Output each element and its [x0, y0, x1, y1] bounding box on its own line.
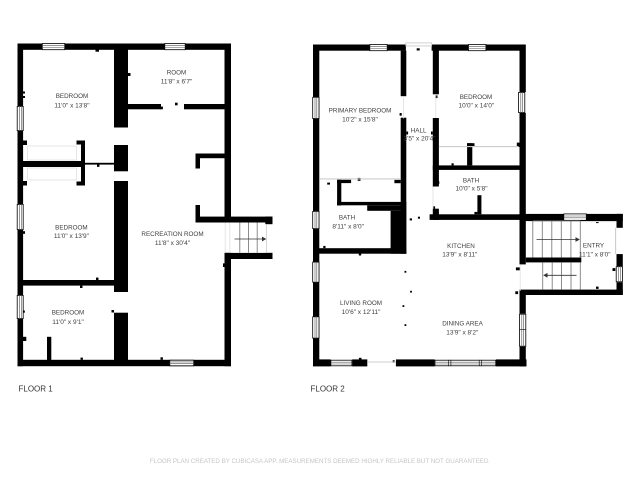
- svg-text:13'9" x 8'11": 13'9" x 8'11": [442, 252, 478, 259]
- svg-text:HALL: HALL: [411, 128, 427, 135]
- svg-text:11'0" x 13'8": 11'0" x 13'8": [54, 103, 90, 110]
- svg-text:11'8" x 30'4": 11'8" x 30'4": [155, 240, 191, 247]
- svg-text:10'0" x 14'0": 10'0" x 14'0": [458, 103, 494, 110]
- svg-text:13'9" x 8'2": 13'9" x 8'2": [446, 330, 479, 337]
- svg-text:BATH: BATH: [463, 178, 480, 185]
- svg-text:BEDROOM: BEDROOM: [460, 94, 493, 101]
- svg-text:8'11" x 8'0": 8'11" x 8'0": [332, 223, 364, 230]
- svg-text:11'8" x 6'7": 11'8" x 6'7": [161, 79, 193, 86]
- svg-text:LIVING ROOM: LIVING ROOM: [340, 300, 382, 307]
- svg-text:ENTRY: ENTRY: [583, 243, 605, 250]
- svg-text:KITCHEN: KITCHEN: [447, 243, 475, 250]
- svg-text:ROOM: ROOM: [167, 70, 187, 77]
- svg-text:RECREATION ROOM: RECREATION ROOM: [141, 231, 203, 238]
- svg-text:BATH: BATH: [339, 215, 356, 222]
- svg-text:BEDROOM: BEDROOM: [52, 310, 85, 317]
- svg-text:11'0" x 9'1": 11'0" x 9'1": [52, 319, 84, 326]
- svg-text:10'6" x 12'11": 10'6" x 12'11": [342, 309, 381, 316]
- svg-text:10'0" x 5'8": 10'0" x 5'8": [455, 185, 488, 192]
- svg-text:PRIMARY BEDROOM: PRIMARY BEDROOM: [329, 108, 392, 115]
- svg-text:10'2" x 15'8": 10'2" x 15'8": [342, 117, 378, 124]
- svg-text:3'5" x 20'4": 3'5" x 20'4": [403, 136, 436, 143]
- svg-text:11'0" x 13'9": 11'0" x 13'9": [54, 233, 90, 240]
- svg-text:11'1" x 8'0": 11'1" x 8'0": [579, 252, 611, 259]
- svg-text:BEDROOM: BEDROOM: [55, 224, 88, 231]
- svg-text:FLOOR 2: FLOOR 2: [311, 385, 346, 394]
- svg-text:FLOOR PLAN CREATED BY CUBICASA: FLOOR PLAN CREATED BY CUBICASA APP. MEAS…: [150, 458, 491, 465]
- svg-text:FLOOR 1: FLOOR 1: [19, 385, 54, 394]
- svg-text:DINING AREA: DINING AREA: [442, 321, 483, 328]
- svg-text:BEDROOM: BEDROOM: [56, 93, 89, 100]
